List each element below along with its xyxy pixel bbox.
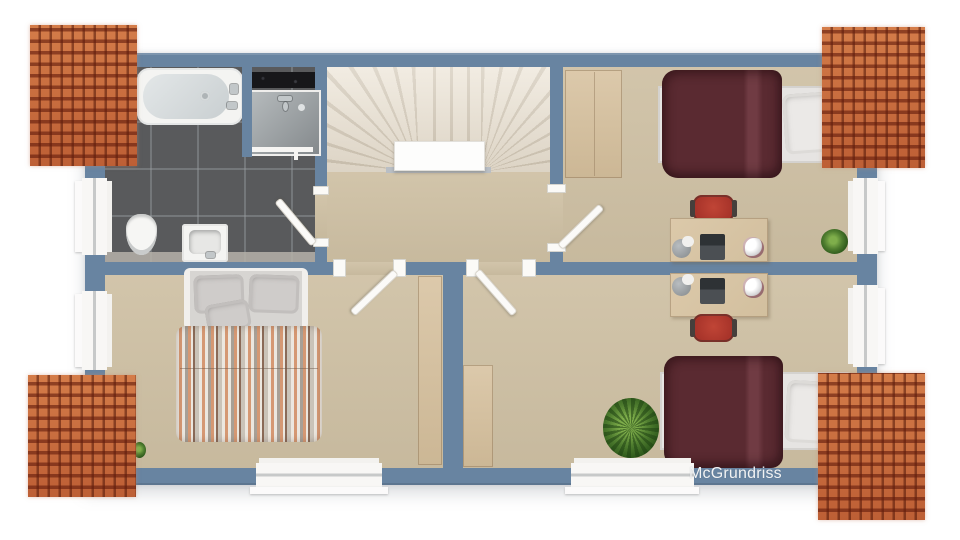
bathtub bbox=[137, 68, 243, 125]
window-sill bbox=[878, 181, 885, 251]
potted-plant bbox=[821, 229, 848, 254]
window-inner-sill bbox=[107, 181, 112, 252]
door-jamb bbox=[522, 259, 536, 277]
bathroom-counter bbox=[250, 72, 315, 88]
door-jamb bbox=[313, 186, 329, 195]
shower bbox=[248, 90, 321, 156]
large-plant bbox=[603, 398, 659, 458]
desk-lamp-icon bbox=[672, 239, 691, 258]
maroon-duvet bbox=[664, 356, 783, 468]
crumpled-paper-icon bbox=[743, 237, 764, 258]
door-jamb bbox=[333, 259, 346, 277]
bathroom-door-threshold bbox=[315, 193, 327, 238]
pillow bbox=[248, 274, 299, 314]
bedroom-bottom-right-window-bottom bbox=[571, 463, 694, 487]
master-window-bottom bbox=[256, 463, 382, 487]
laptop-icon bbox=[700, 278, 725, 304]
roof-tiles-top-left bbox=[30, 25, 137, 166]
floor-plan: McGrundriss bbox=[0, 0, 960, 540]
bedroom-bottom-right-window bbox=[853, 285, 878, 367]
window-inner-sill bbox=[848, 181, 853, 251]
hallway-floor bbox=[327, 172, 550, 262]
bedroom-top-right-door-threshold bbox=[550, 193, 563, 245]
window-sill bbox=[75, 294, 82, 367]
laptop-icon bbox=[700, 234, 725, 260]
bedroom-top-right-window bbox=[853, 178, 878, 254]
shower-fitting-icon bbox=[278, 96, 292, 101]
bathroom-window bbox=[82, 178, 107, 255]
bedroom-bottom-right-door-threshold bbox=[479, 262, 523, 275]
desk-lamp-icon bbox=[672, 277, 691, 296]
watermark-text: McGrundriss bbox=[689, 464, 782, 483]
roof-tiles-bottom-left bbox=[28, 375, 136, 497]
stairs-landing bbox=[394, 141, 485, 171]
wardrobe bbox=[418, 276, 442, 465]
window-inner-sill bbox=[848, 288, 853, 364]
roof-tiles-top-right bbox=[822, 27, 925, 168]
window-sill bbox=[75, 181, 82, 252]
wardrobe bbox=[463, 365, 493, 467]
office-chair bbox=[693, 314, 734, 342]
roof-tiles-bottom-right bbox=[818, 373, 925, 520]
window-inner-sill bbox=[107, 294, 112, 367]
maroon-duvet bbox=[662, 70, 782, 178]
wall-segment bbox=[242, 67, 252, 157]
door-jamb bbox=[547, 184, 566, 193]
wardrobe bbox=[565, 70, 622, 178]
bathtub-faucet-icon bbox=[230, 84, 238, 94]
window-sill bbox=[878, 288, 885, 364]
sink bbox=[182, 224, 228, 262]
master-window-left bbox=[82, 291, 107, 370]
striped-duvet bbox=[176, 326, 322, 442]
sink-faucet-icon bbox=[206, 252, 215, 258]
crumpled-paper-icon bbox=[743, 277, 764, 298]
window-sill bbox=[565, 487, 699, 494]
window-sill bbox=[250, 487, 388, 494]
